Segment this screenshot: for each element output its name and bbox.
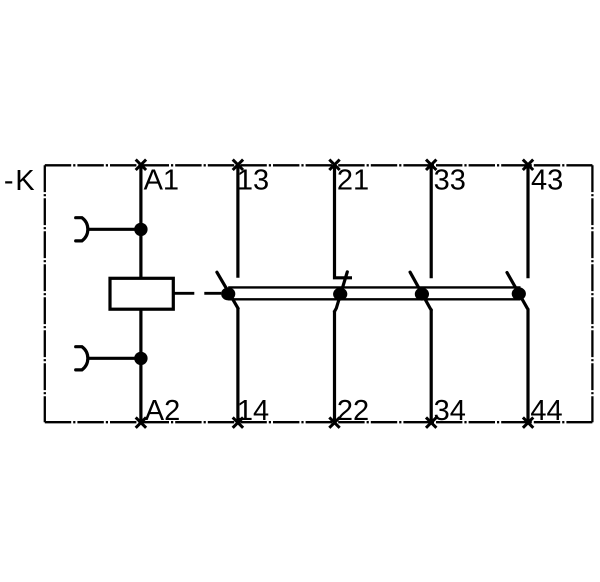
svg-text:13: 13: [237, 165, 269, 197]
svg-text:14: 14: [237, 395, 269, 427]
svg-text:A2: A2: [145, 395, 180, 427]
svg-text:44: 44: [530, 395, 562, 427]
svg-text:21: 21: [337, 165, 369, 197]
svg-text:33: 33: [434, 165, 466, 197]
svg-text:43: 43: [531, 165, 563, 197]
svg-text:22: 22: [337, 395, 369, 427]
svg-text:-: -: [4, 165, 14, 197]
svg-text:A1: A1: [144, 165, 179, 197]
svg-text:34: 34: [434, 395, 466, 427]
svg-text:K: K: [15, 165, 35, 197]
